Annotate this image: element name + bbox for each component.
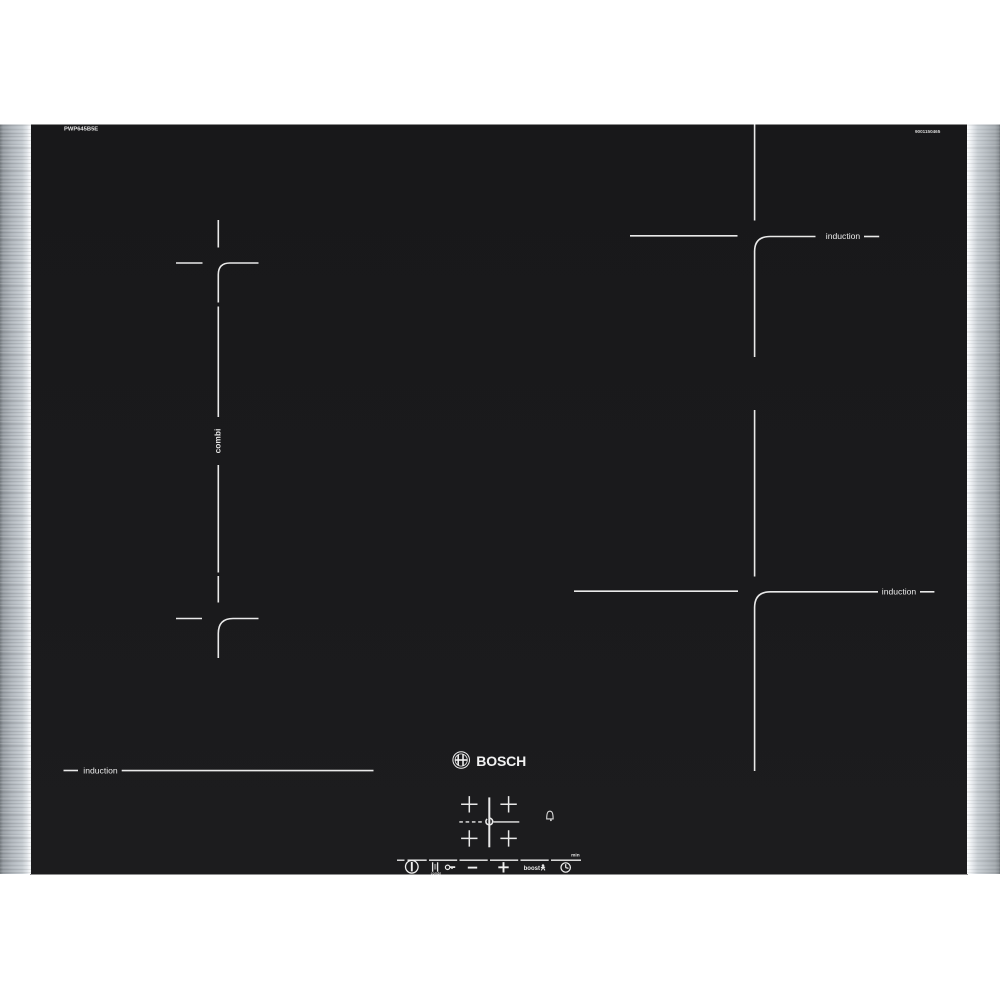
svg-text:induction: induction [882,587,917,597]
svg-text:PWP645B5E: PWP645B5E [64,127,98,133]
svg-text:BOSCH: BOSCH [476,753,526,769]
svg-text:combi: combi [431,872,441,876]
svg-text:induction: induction [826,231,861,241]
svg-text:9001150465: 9001150465 [915,129,941,134]
svg-text:induction: induction [83,765,118,775]
svg-text:boost: boost [524,866,540,872]
svg-text:min: min [571,852,580,858]
svg-text:combi: combi [213,429,223,454]
